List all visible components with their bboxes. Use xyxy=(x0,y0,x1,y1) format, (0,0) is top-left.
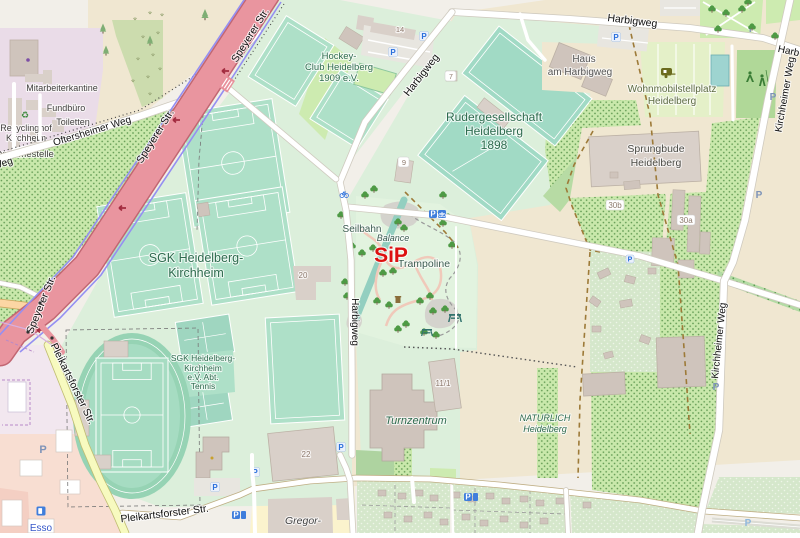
svg-text:Heidelberg: Heidelberg xyxy=(523,424,567,434)
svg-text:Sprungbude: Sprungbude xyxy=(627,143,684,155)
svg-text:1909 e.V.: 1909 e.V. xyxy=(319,73,359,84)
svg-text:SGK Heidelberg-: SGK Heidelberg- xyxy=(149,251,244,265)
svg-text:Toiletten: Toiletten xyxy=(56,117,90,127)
svg-text:Heidelberg: Heidelberg xyxy=(631,157,682,169)
svg-text:Heidelberg: Heidelberg xyxy=(465,124,523,138)
svg-text:Recyclinghof: Recyclinghof xyxy=(0,123,52,133)
svg-text:Rudergesellschaft: Rudergesellschaft xyxy=(446,110,543,124)
svg-text:Club Heidelberg: Club Heidelberg xyxy=(305,62,373,73)
svg-text:SiP: SiP xyxy=(374,244,408,267)
svg-text:Fundbüro: Fundbüro xyxy=(47,103,86,113)
svg-text:SGK Heidelberg-: SGK Heidelberg- xyxy=(171,353,235,363)
svg-text:P: P xyxy=(713,382,720,393)
svg-text:P: P xyxy=(39,444,46,456)
svg-text:Kirchheim: Kirchheim xyxy=(168,266,224,280)
svg-text:P: P xyxy=(465,493,471,502)
svg-text:P: P xyxy=(212,483,218,492)
svg-text:Gregor-: Gregor- xyxy=(285,515,321,527)
svg-text:22: 22 xyxy=(302,450,311,459)
svg-text:Harbigweg: Harbigweg xyxy=(349,298,360,346)
svg-text:NATURLICH: NATURLICH xyxy=(520,413,571,423)
svg-text:am Harbigweg: am Harbigweg xyxy=(548,67,612,78)
svg-text:P: P xyxy=(390,48,396,57)
svg-text:P: P xyxy=(233,511,239,520)
svg-text:Hockey-: Hockey- xyxy=(322,51,357,62)
svg-text:P: P xyxy=(756,190,763,201)
svg-text:P: P xyxy=(613,33,619,42)
svg-text:Esso: Esso xyxy=(30,523,53,533)
svg-text:P: P xyxy=(770,92,777,103)
svg-text:Turnzentrum: Turnzentrum xyxy=(385,415,447,427)
svg-text:9: 9 xyxy=(402,158,406,167)
svg-text:11/1: 11/1 xyxy=(436,379,452,388)
svg-text:20: 20 xyxy=(299,271,308,280)
svg-text:P: P xyxy=(338,443,344,452)
svg-text:Tennis: Tennis xyxy=(191,381,216,391)
svg-text:Mitarbeiterkantine: Mitarbeiterkantine xyxy=(26,83,98,93)
svg-text:Wohnmobilstellplatz: Wohnmobilstellplatz xyxy=(628,84,717,95)
svg-text:P: P xyxy=(628,257,633,264)
svg-text:1898: 1898 xyxy=(481,138,508,152)
svg-text:P: P xyxy=(430,210,436,219)
svg-text:Heidelberg: Heidelberg xyxy=(648,96,696,107)
svg-text:♻: ♻ xyxy=(21,110,29,120)
svg-text:14: 14 xyxy=(396,25,404,34)
svg-text:P: P xyxy=(745,518,752,529)
svg-text:Balance: Balance xyxy=(377,233,410,243)
svg-text:30a: 30a xyxy=(679,216,693,225)
svg-text:Haus: Haus xyxy=(572,54,595,65)
svg-text:7: 7 xyxy=(449,74,453,81)
svg-text:30b: 30b xyxy=(608,201,622,210)
svg-text:Seilbahn: Seilbahn xyxy=(343,224,382,235)
